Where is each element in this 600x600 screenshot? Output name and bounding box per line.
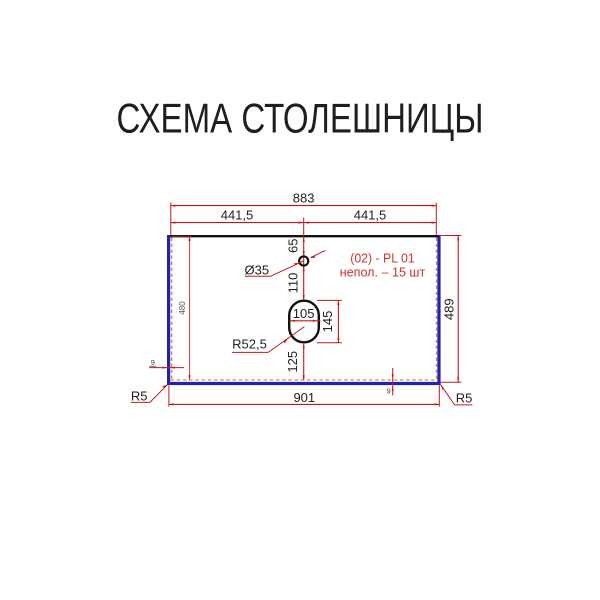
svg-text:9: 9	[387, 386, 391, 395]
svg-text:489: 489	[441, 298, 456, 320]
svg-text:СХЕМА СТОЛЕШНИЦЫ: СХЕМА СТОЛЕШНИЦЫ	[117, 95, 484, 142]
svg-text:145: 145	[320, 311, 335, 333]
svg-text:R52,5: R52,5	[232, 337, 267, 352]
svg-text:125: 125	[285, 351, 300, 373]
svg-text:883: 883	[293, 190, 315, 205]
svg-text:441,5: 441,5	[221, 207, 254, 222]
svg-text:R5: R5	[131, 389, 148, 404]
svg-text:(02) - PL 01: (02) - PL 01	[350, 251, 415, 266]
svg-text:65: 65	[286, 239, 301, 253]
svg-text:непол. – 15 шт: непол. – 15 шт	[340, 264, 426, 279]
svg-text:480: 480	[178, 301, 187, 315]
svg-text:Ø35: Ø35	[245, 263, 270, 278]
svg-text:R5: R5	[456, 390, 473, 405]
svg-text:901: 901	[293, 390, 315, 405]
svg-text:110: 110	[285, 273, 300, 294]
svg-text:441,5: 441,5	[354, 207, 387, 222]
svg-text:105: 105	[293, 306, 315, 321]
